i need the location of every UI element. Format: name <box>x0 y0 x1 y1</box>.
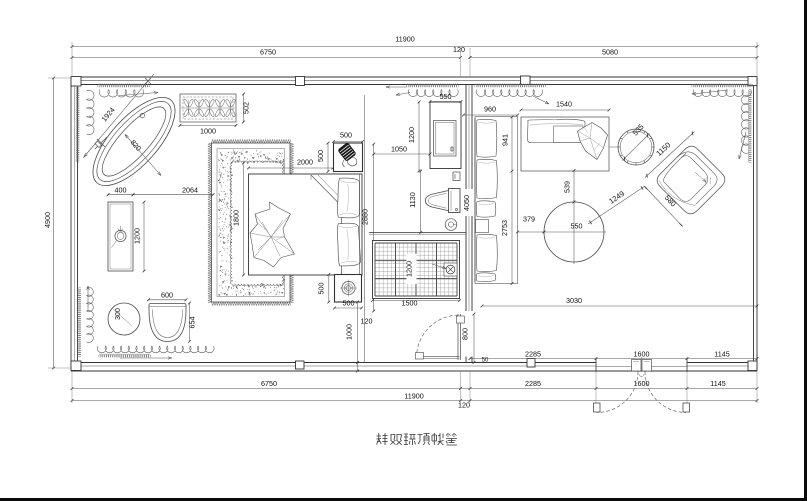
svg-text:654: 654 <box>188 317 197 329</box>
svg-text:4050: 4050 <box>462 195 471 211</box>
svg-text:500: 500 <box>343 299 355 308</box>
svg-text:5080: 5080 <box>602 48 618 57</box>
svg-text:400: 400 <box>115 186 127 195</box>
svg-text:539: 539 <box>563 181 572 193</box>
svg-text:50: 50 <box>482 358 489 364</box>
svg-text:500: 500 <box>340 131 352 140</box>
svg-text:502: 502 <box>242 102 251 114</box>
svg-text:379: 379 <box>523 215 535 224</box>
svg-text:6750: 6750 <box>261 379 277 388</box>
svg-text:550: 550 <box>571 222 583 231</box>
svg-text:500: 500 <box>317 283 326 295</box>
svg-text:120: 120 <box>361 317 373 326</box>
svg-text:2000: 2000 <box>297 158 313 167</box>
svg-text:1000: 1000 <box>200 127 216 136</box>
svg-text:11900: 11900 <box>404 392 423 401</box>
svg-text:2285: 2285 <box>525 350 541 359</box>
svg-text:600: 600 <box>161 291 173 300</box>
svg-text:960: 960 <box>484 105 496 114</box>
svg-text:6750: 6750 <box>260 48 276 57</box>
svg-text:941: 941 <box>501 134 510 146</box>
svg-text:500: 500 <box>316 150 325 162</box>
svg-text:550: 550 <box>440 92 452 101</box>
svg-text:1145: 1145 <box>714 350 729 359</box>
svg-text:1200: 1200 <box>405 261 414 277</box>
svg-text:1145: 1145 <box>710 379 725 388</box>
svg-text:120: 120 <box>453 45 465 54</box>
svg-text:2285: 2285 <box>525 379 541 388</box>
svg-text:120: 120 <box>458 401 470 410</box>
svg-text:4900: 4900 <box>43 212 52 228</box>
svg-text:1800: 1800 <box>232 210 241 226</box>
svg-text:11900: 11900 <box>395 35 414 44</box>
svg-text:1000: 1000 <box>345 324 354 340</box>
svg-text:2753: 2753 <box>500 220 509 236</box>
svg-text:2880: 2880 <box>361 209 370 225</box>
svg-text:800: 800 <box>461 328 470 340</box>
svg-text:1540: 1540 <box>556 100 572 109</box>
svg-text:3030: 3030 <box>566 296 582 305</box>
svg-text:1050: 1050 <box>391 145 407 154</box>
svg-text:1130: 1130 <box>408 192 417 207</box>
svg-text:1200: 1200 <box>133 228 142 244</box>
svg-text:2064: 2064 <box>182 186 198 195</box>
svg-text:1200: 1200 <box>407 127 416 143</box>
svg-text:1500: 1500 <box>402 299 418 308</box>
